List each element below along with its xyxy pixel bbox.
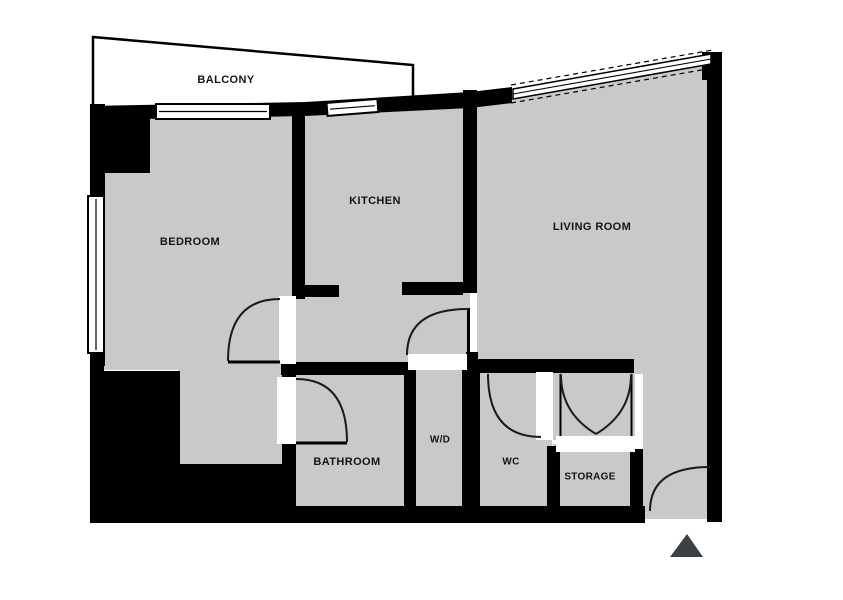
wall-kitchen-living [463,90,477,293]
wall-kitchen-bottom-left [292,285,339,297]
storage-opening [556,436,635,452]
wc-door-leaf [536,372,553,440]
bedroom-door-gap [279,296,296,364]
wd-label: W/D [430,435,450,446]
wall-storage-right [630,449,643,522]
wall-wd-left [404,362,416,510]
bathroom-door-gap [277,377,296,444]
bedroom-label: BEDROOM [160,236,220,248]
window-kitchen-top [327,99,379,116]
balcony-outline [93,37,413,107]
window-bedroom-left [88,196,104,353]
living-room-label: LIVING ROOM [553,221,631,233]
kitchen-label: KITCHEN [349,195,401,207]
wall-bedroom-kitchen [292,104,305,299]
bathroom-label: BATHROOM [313,456,380,468]
wall-bathroom-top [281,362,415,375]
window-bedroom-top [156,104,270,119]
floor-plan: BALCONY BEDROOM KITCHEN LIVING ROOM BATH… [0,0,843,600]
entrance-triangle-marker [670,534,703,557]
floor-plan-drawing [0,0,843,600]
wall-wc-storage-top [466,359,634,373]
kitchen-hall-floor [298,95,470,375]
balcony-label: BALCONY [197,74,254,86]
wall-kitchen-bottom-right [402,282,463,295]
wall-wd-wc [462,368,480,510]
wc-label: WC [502,457,519,468]
storage-label: STORAGE [564,472,615,483]
wd-door-gap [408,354,467,370]
wall-right-exterior [707,55,722,522]
wall-topleft-block [90,118,150,173]
wall-storage-left [547,446,560,522]
